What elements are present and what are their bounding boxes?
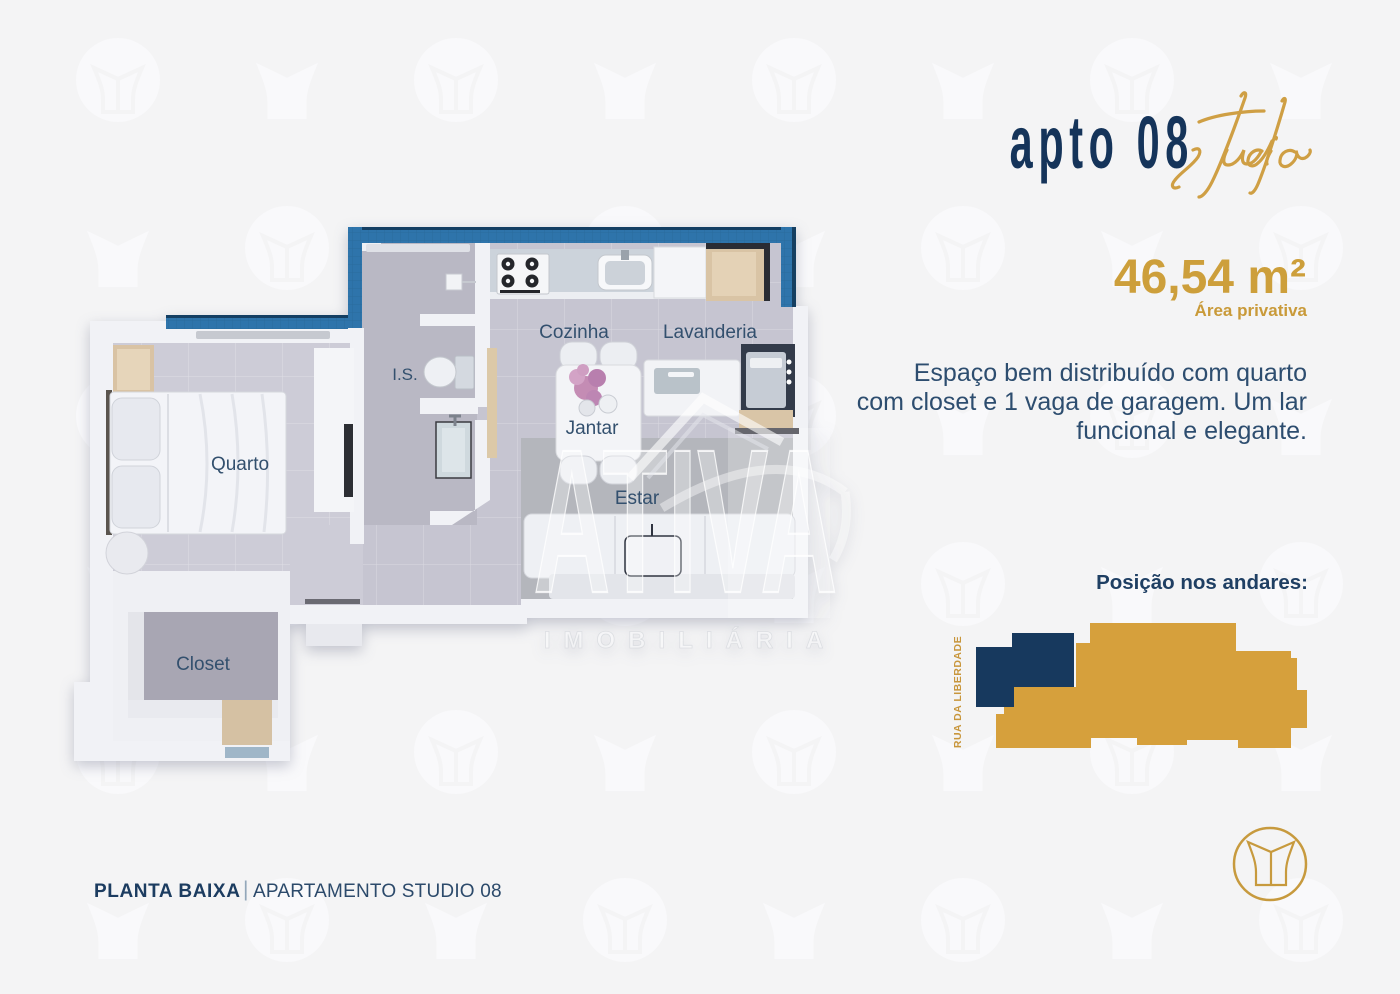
svg-text:IMOBILIÁRIA: IMOBILIÁRIA (544, 626, 836, 654)
svg-text:funcional e elegante.: funcional e elegante. (1076, 417, 1307, 445)
svg-text:Área privativa: Área privativa (1195, 301, 1308, 320)
svg-text:Posição nos andares:: Posição nos andares: (1096, 571, 1308, 594)
svg-text:Espaço bem distribuído com qua: Espaço bem distribuído com quarto (914, 359, 1307, 387)
svg-text:RUA DA LIBERDADE: RUA DA LIBERDADE (952, 636, 964, 748)
svg-text:Quarto: Quarto (211, 454, 269, 475)
svg-text:Jantar: Jantar (566, 418, 619, 439)
svg-text:|: | (243, 878, 248, 901)
svg-text:apto 08: apto 08 (1010, 101, 1194, 184)
svg-text:Cozinha: Cozinha (539, 322, 609, 343)
svg-text:APARTAMENTO STUDIO 08: APARTAMENTO STUDIO 08 (253, 881, 502, 902)
svg-text:Lavanderia: Lavanderia (663, 322, 757, 343)
svg-text:Closet: Closet (176, 654, 231, 675)
svg-text:Estar: Estar (615, 488, 660, 509)
svg-text:I.S.: I.S. (392, 365, 418, 384)
svg-text:PLANTA BAIXA: PLANTA BAIXA (94, 881, 241, 902)
svg-text:com closet e 1 vaga de garagem: com closet e 1 vaga de garagem. Um lar (857, 388, 1307, 416)
svg-text:46,54 m²: 46,54 m² (1114, 251, 1306, 304)
svg-text:ATIVA: ATIVA (533, 406, 837, 636)
